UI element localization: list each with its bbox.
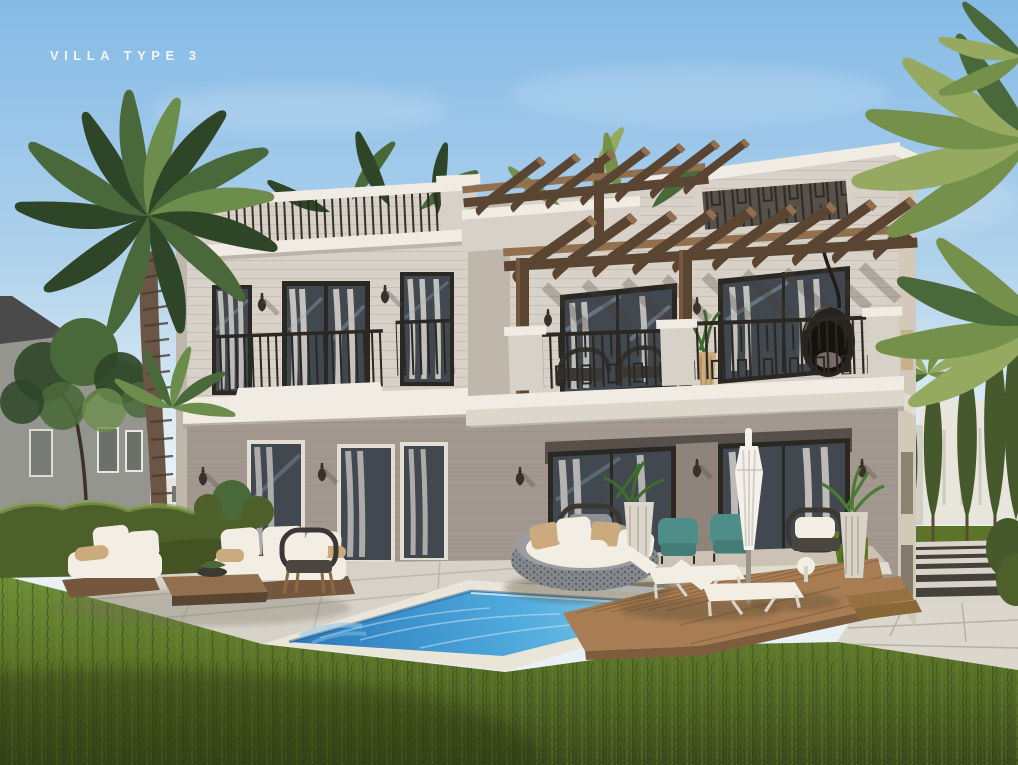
scene-canvas bbox=[0, 0, 1018, 765]
window-lower-2 bbox=[400, 442, 448, 560]
villa-render: VILLA TYPE 3 bbox=[0, 0, 1018, 765]
page-title: VILLA TYPE 3 bbox=[50, 48, 201, 63]
door-lower-1 bbox=[337, 444, 395, 562]
